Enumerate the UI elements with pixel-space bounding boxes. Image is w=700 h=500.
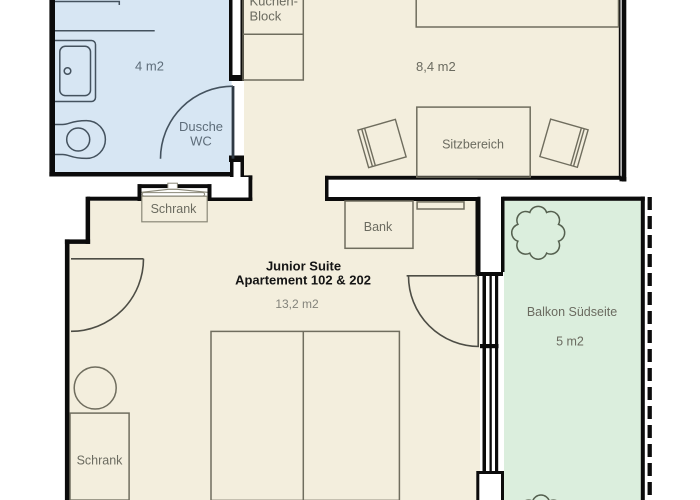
svg-text:Schrank: Schrank (77, 454, 124, 468)
svg-text:Dusche: Dusche (179, 119, 223, 134)
svg-text:Balkon Südseite: Balkon Südseite (527, 305, 617, 319)
svg-text:Block: Block (250, 9, 282, 24)
svg-text:WC: WC (190, 134, 212, 149)
svg-text:Apartement 102 & 202: Apartement 102 & 202 (235, 273, 371, 288)
svg-text:4 m2: 4 m2 (135, 59, 164, 74)
svg-text:Küchen-: Küchen- (250, 0, 298, 9)
svg-text:8,4 m2: 8,4 m2 (416, 59, 456, 74)
svg-text:13,2 m2: 13,2 m2 (275, 297, 319, 311)
svg-text:Sitzbereich: Sitzbereich (442, 138, 504, 152)
svg-text:Bank: Bank (364, 220, 393, 234)
svg-text:5 m2: 5 m2 (556, 334, 584, 348)
svg-text:Schrank: Schrank (151, 202, 198, 216)
svg-text:Junior Suite: Junior Suite (266, 259, 341, 274)
